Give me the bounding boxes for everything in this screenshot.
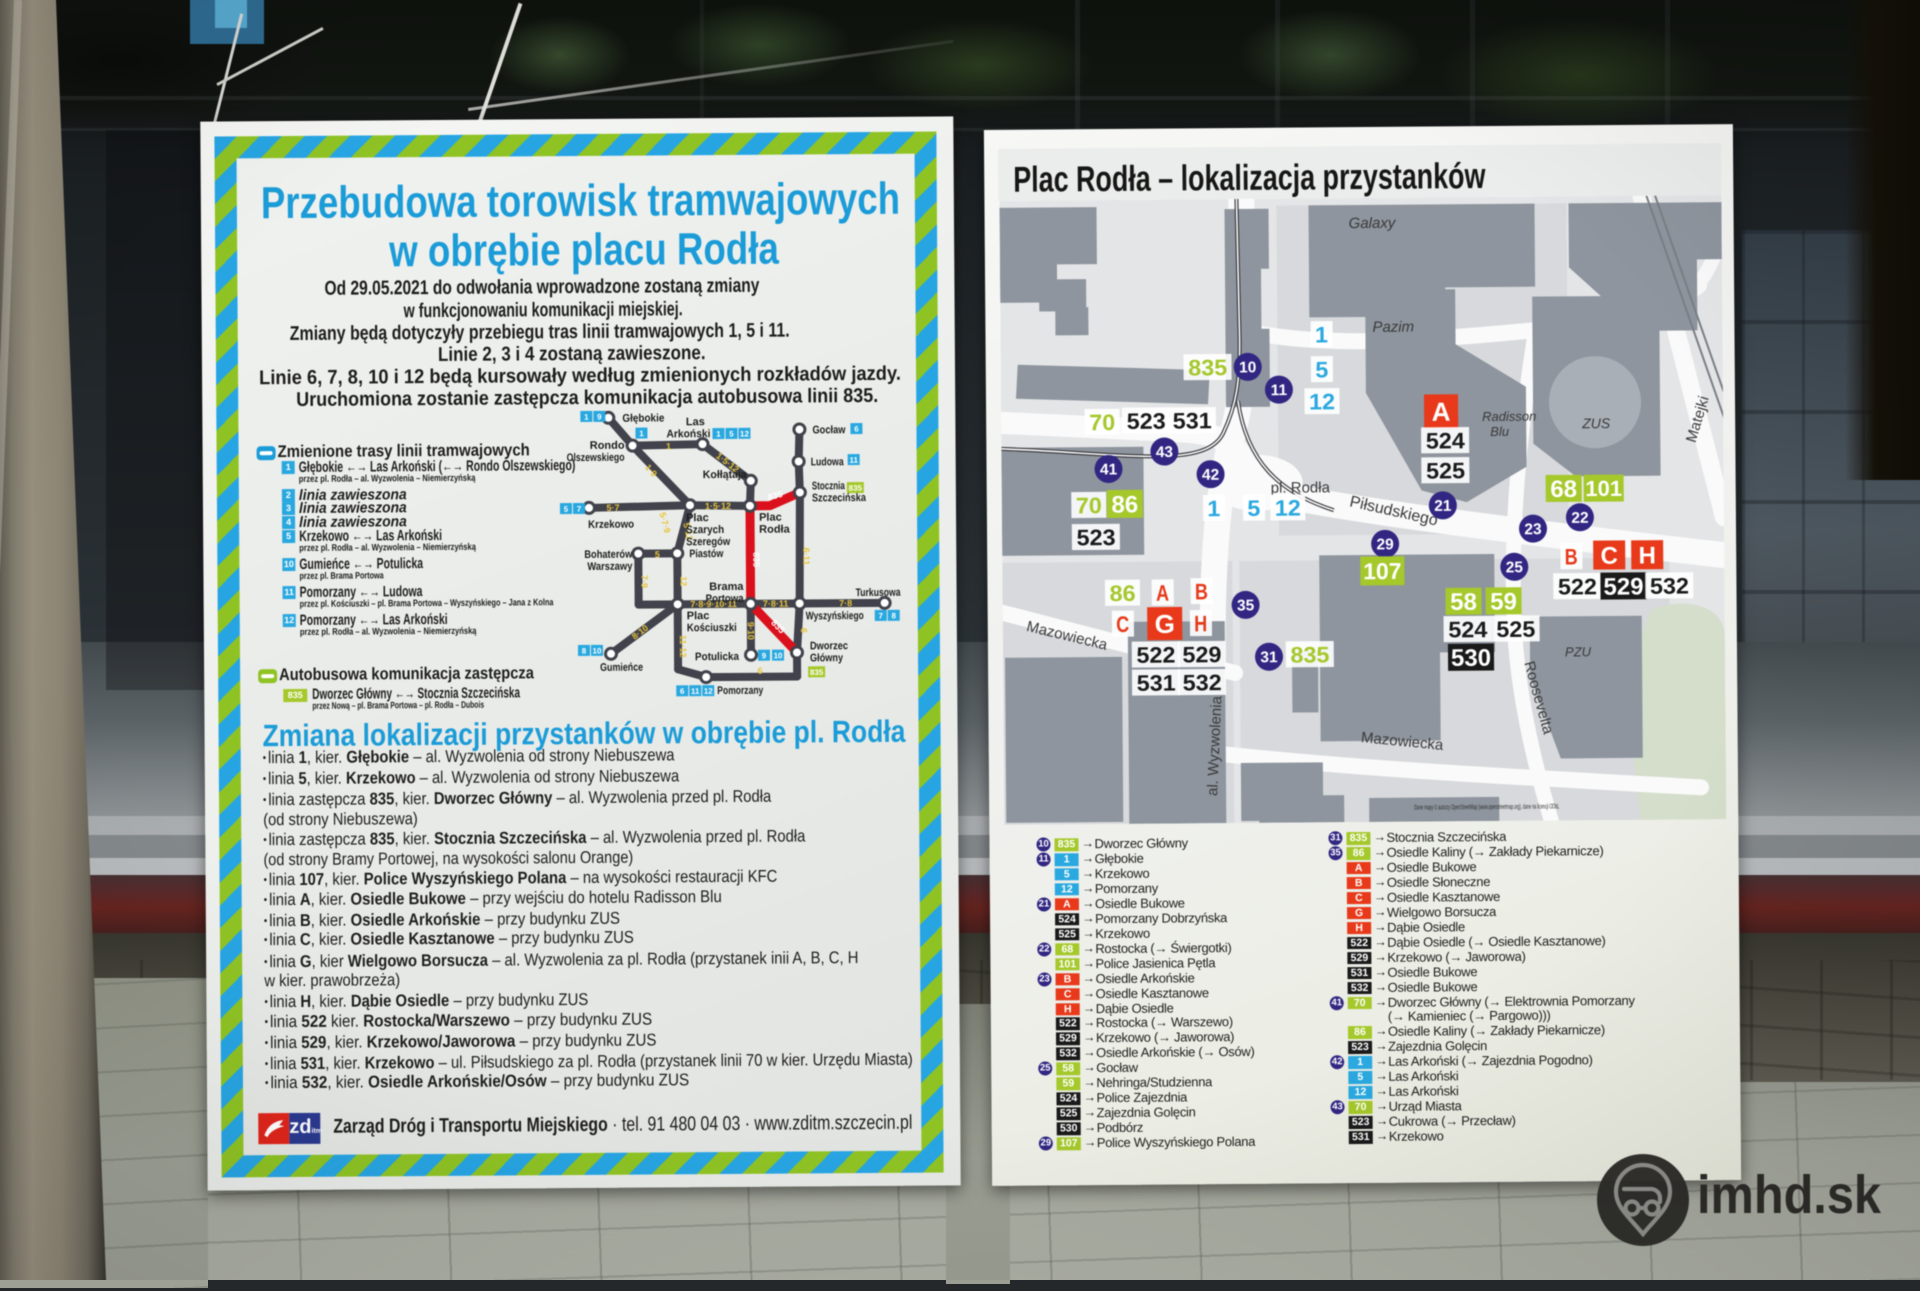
svg-text:59: 59 <box>1490 588 1517 615</box>
svg-text:A: A <box>1156 581 1169 606</box>
svg-text:525: 525 <box>1426 458 1465 483</box>
svg-text:42: 42 <box>1202 467 1219 484</box>
svg-text:101: 101 <box>1585 476 1622 501</box>
svg-text:PZU: PZU <box>1565 644 1592 659</box>
svg-text:H: H <box>1194 611 1207 636</box>
svg-text:12: 12 <box>1309 389 1335 414</box>
svg-text:H: H <box>1638 542 1656 569</box>
svg-text:12: 12 <box>1275 496 1301 521</box>
svg-text:35: 35 <box>1237 597 1255 614</box>
svg-text:11: 11 <box>1271 382 1288 399</box>
svg-text:C: C <box>1600 543 1618 570</box>
svg-text:70: 70 <box>1089 410 1115 435</box>
svg-text:835: 835 <box>1290 642 1329 667</box>
svg-text:532: 532 <box>1183 670 1222 695</box>
svg-text:68: 68 <box>1550 476 1577 503</box>
svg-text:524: 524 <box>1426 428 1466 453</box>
svg-text:31: 31 <box>1260 649 1278 666</box>
svg-text:41: 41 <box>1100 461 1118 478</box>
svg-text:G: G <box>1155 609 1175 639</box>
svg-text:Dane mapy © autorzy OpenStreet: Dane mapy © autorzy OpenStreetMap (www.o… <box>1414 802 1559 811</box>
svg-text:B: B <box>1565 544 1578 569</box>
svg-text:10: 10 <box>1239 359 1256 376</box>
svg-text:58: 58 <box>1450 589 1477 616</box>
svg-text:86: 86 <box>1111 491 1138 518</box>
svg-text:Blu: Blu <box>1490 424 1509 439</box>
svg-text:25: 25 <box>1506 559 1524 576</box>
svg-text:C: C <box>1116 612 1129 637</box>
svg-text:86: 86 <box>1109 581 1135 606</box>
svg-text:imhd.sk: imhd.sk <box>1697 1165 1882 1225</box>
svg-text:22: 22 <box>1571 510 1588 527</box>
svg-text:21: 21 <box>1434 498 1452 515</box>
svg-text:525: 525 <box>1496 617 1535 642</box>
svg-text:529: 529 <box>1603 573 1643 600</box>
svg-text:B: B <box>1195 579 1208 604</box>
svg-text:5: 5 <box>1315 357 1328 382</box>
svg-text:531: 531 <box>1137 671 1176 696</box>
svg-text:ZUS: ZUS <box>1581 415 1611 431</box>
svg-text:43: 43 <box>1156 444 1174 461</box>
svg-text:Radisson: Radisson <box>1482 409 1536 424</box>
svg-text:835: 835 <box>1188 355 1227 380</box>
svg-text:524: 524 <box>1448 617 1488 642</box>
svg-text:5: 5 <box>1247 496 1260 521</box>
svg-text:523: 523 <box>1076 525 1115 550</box>
svg-text:530: 530 <box>1451 645 1491 672</box>
svg-text:Galaxy: Galaxy <box>1349 215 1397 232</box>
svg-text:Pazim: Pazim <box>1372 319 1414 336</box>
svg-text:522: 522 <box>1558 574 1597 599</box>
svg-text:522: 522 <box>1136 643 1175 668</box>
svg-text:529: 529 <box>1182 642 1221 667</box>
svg-text:107: 107 <box>1363 558 1402 584</box>
svg-text:531: 531 <box>1173 408 1212 433</box>
svg-text:pl. Rodła: pl. Rodła <box>1271 479 1331 496</box>
svg-text:523: 523 <box>1127 409 1166 434</box>
svg-text:A: A <box>1432 397 1451 427</box>
svg-text:29: 29 <box>1376 536 1394 553</box>
svg-text:532: 532 <box>1650 574 1689 599</box>
svg-text:1: 1 <box>1207 496 1220 521</box>
svg-text:23: 23 <box>1524 521 1542 538</box>
svg-text:70: 70 <box>1076 493 1102 518</box>
svg-text:1: 1 <box>1315 322 1328 347</box>
